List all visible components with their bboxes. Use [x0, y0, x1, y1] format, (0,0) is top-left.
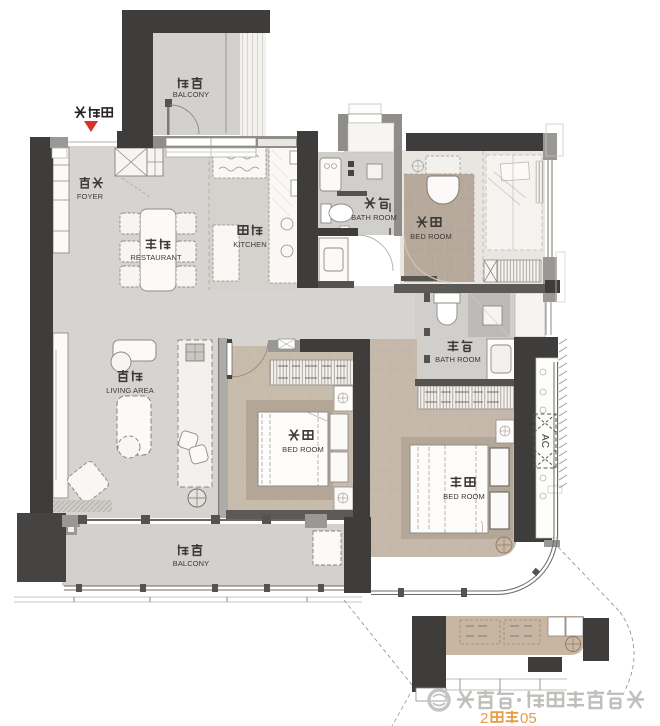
svg-text:05: 05 [520, 710, 537, 726]
svg-text:BALCONY: BALCONY [173, 559, 210, 568]
svg-text:BALCONY: BALCONY [173, 90, 210, 99]
svg-text:BED ROOM: BED ROOM [443, 492, 485, 501]
svg-text:BED ROOM: BED ROOM [282, 445, 324, 454]
svg-text:2: 2 [480, 710, 488, 726]
svg-text:RESTAURANT: RESTAURANT [130, 253, 182, 262]
svg-text:BATH ROOM: BATH ROOM [435, 355, 481, 364]
svg-text:KITCHEN: KITCHEN [233, 240, 267, 249]
svg-text:FOYER: FOYER [77, 192, 104, 201]
svg-text:LIVING AREA: LIVING AREA [106, 386, 154, 395]
svg-text:AC: AC [539, 434, 550, 448]
svg-text:BED ROOM: BED ROOM [410, 232, 452, 241]
svg-text:BATH ROOM: BATH ROOM [351, 213, 397, 222]
